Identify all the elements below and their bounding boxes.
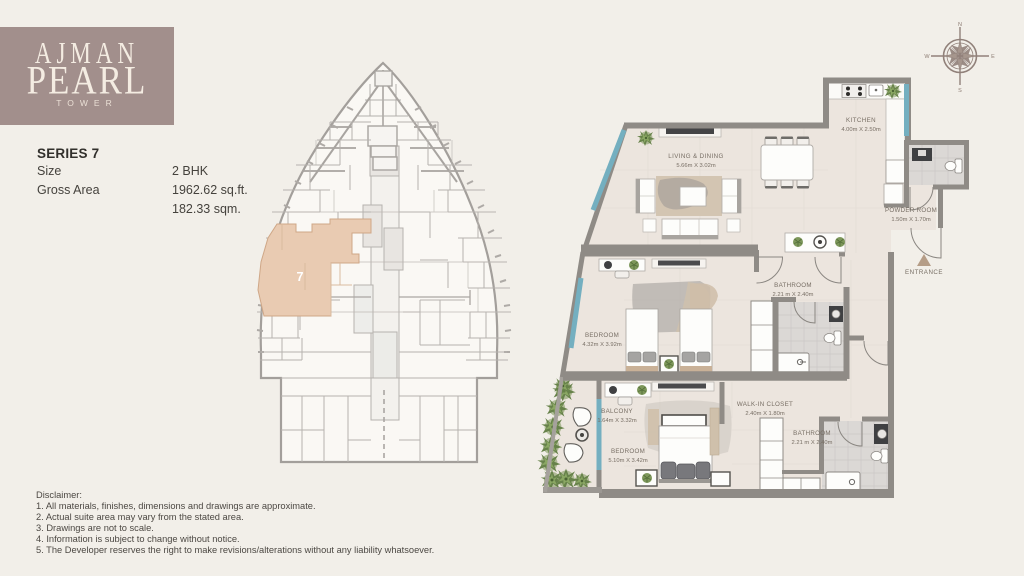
svg-text:2.40m X 1.80m: 2.40m X 1.80m xyxy=(745,411,784,417)
svg-text:BALCONY: BALCONY xyxy=(601,408,633,415)
svg-text:WALK-IN CLOSET: WALK-IN CLOSET xyxy=(737,401,793,408)
svg-text:S: S xyxy=(958,88,962,94)
svg-text:ENTRANCE: ENTRANCE xyxy=(905,269,943,276)
svg-text:LIVING & DINING: LIVING & DINING xyxy=(668,153,724,160)
svg-text:1.64m X 3.32m: 1.64m X 3.32m xyxy=(597,418,636,424)
svg-text:4.32m X 3.92m: 4.32m X 3.92m xyxy=(582,342,621,348)
svg-text:W: W xyxy=(924,54,930,60)
svg-text:E: E xyxy=(991,54,995,60)
svg-text:BATHROOM: BATHROOM xyxy=(774,282,812,289)
svg-text:5.66m X 3.02m: 5.66m X 3.02m xyxy=(676,163,715,169)
svg-text:BATHROOM: BATHROOM xyxy=(793,430,831,437)
svg-text:7: 7 xyxy=(297,270,304,284)
svg-text:2.21 m X 2.40m: 2.21 m X 2.40m xyxy=(792,440,833,446)
svg-text:KITCHEN: KITCHEN xyxy=(846,117,876,124)
svg-text:BEDROOM: BEDROOM xyxy=(611,448,645,455)
svg-text:POWDER ROOM: POWDER ROOM xyxy=(885,207,937,214)
svg-text:2.21 m X 2.40m: 2.21 m X 2.40m xyxy=(773,292,814,298)
svg-text:5.10m X 3.42m: 5.10m X 3.42m xyxy=(608,458,647,464)
svg-text:1.50m X 1.70m: 1.50m X 1.70m xyxy=(891,217,930,223)
svg-text:BEDROOM: BEDROOM xyxy=(585,332,619,339)
svg-text:4.00m X 2.50m: 4.00m X 2.50m xyxy=(841,127,880,133)
svg-text:N: N xyxy=(958,22,962,28)
